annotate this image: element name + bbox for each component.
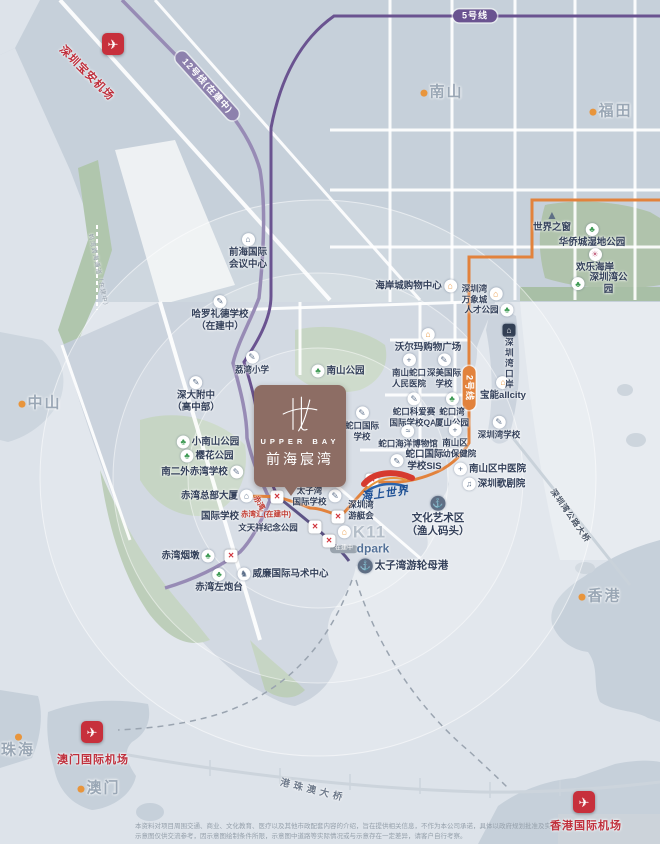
wentianxiang-memorial-park: 文天祥纪念公园 [238, 523, 298, 534]
park-icon: ♣ [501, 304, 514, 317]
school-icon: ✎ [437, 353, 450, 366]
shenzhen-bay-park-label: 深圳湾公园 [587, 272, 631, 296]
shenzhen-opera-house-label: 深圳歌剧院 [478, 478, 526, 490]
happy-coast: ☀欢乐海岸 [576, 248, 614, 274]
shenzhen-bay-school-label: 深圳湾学校 [478, 430, 521, 441]
shekou-international-school: ✎蛇口国际 学校 [345, 406, 379, 441]
harrow-lide-school: ✎哈罗礼德学校 （在建中） [191, 295, 248, 333]
yinghua-park-label: 樱花公园 [195, 450, 233, 462]
shekou-people-hospital: +南山蛇口 人民医院 [392, 353, 426, 388]
international-school: 国际学校 [201, 511, 239, 523]
nanshan-park-label: 南山公园 [326, 365, 364, 377]
customs-icon: ⌂ [503, 324, 516, 337]
shenzhen-bay-bridge-label-label: 深圳湾公路大桥 [548, 487, 592, 544]
shop-icon: ⌂ [489, 288, 502, 301]
william-equestrian-center: ♞威廉国际马术中心 [237, 568, 328, 581]
line5-pill: 5号线 [453, 9, 497, 22]
hospital-icon: + [454, 463, 467, 476]
chiwan-left-fort-label: 赤湾左炮台 [195, 582, 243, 594]
shop-icon: ⌂ [444, 280, 457, 293]
walmart-plaza-label: 沃尔玛购物广场 [395, 342, 462, 354]
shenzhen-airport-icon: ✈ [102, 33, 124, 55]
city-zhongshan-label: 中山 [27, 395, 61, 414]
harrow-lide-school-label: 哈罗礼德学校 （在建中） [191, 309, 248, 333]
shenzhen-bay-checkpoint: ⌂深圳湾口岸 [503, 324, 516, 391]
park-icon: ♣ [311, 365, 324, 378]
city-zhuhai: 珠海 [1, 734, 35, 761]
rencai-park-label: 人才公园 [464, 305, 498, 316]
city-zhongshan: 中山 [18, 395, 61, 414]
horse-icon: ♞ [237, 568, 250, 581]
city-hongkong-label: 香港 [587, 588, 621, 607]
upper-bay-monogram-icon [279, 393, 321, 435]
airport-icon: ✈ [81, 721, 103, 743]
william-equestrian-center-label: 威廉国际马术中心 [252, 568, 328, 580]
k11: ⌂K11 [338, 521, 386, 542]
shenzhen-bay-school: ✎深圳湾学校 [478, 416, 521, 441]
shenda-high-school: ✎深大附中 （高中部） [172, 376, 220, 414]
school-icon: ✎ [492, 416, 505, 429]
shenda-high-school-label: 深大附中 （高中部） [172, 390, 220, 414]
school-icon: ✎ [189, 376, 202, 389]
metro-station-marker: × [271, 491, 284, 504]
park-icon: ♣ [585, 223, 598, 236]
metro-station-marker: × [332, 511, 345, 524]
airport-icon: ✈ [102, 33, 124, 55]
building-icon: ⌂ [241, 233, 254, 246]
upper-bay-name-cn: 前海宸湾 [266, 449, 334, 469]
liwan-primary-school-label: 荔湾小学 [235, 365, 269, 376]
shenzhen-bay-park: ♣深圳湾公园 [572, 272, 631, 296]
park-icon: ♣ [180, 450, 193, 463]
xiaonanshan-park: ♣小南山公园 [177, 436, 240, 449]
shenmei-international-school: ✎深美国际 学校 [427, 353, 461, 388]
mawan-channel-label: 妈湾跨海通道（在建中） [85, 234, 108, 311]
liwan-primary-school: ✎荔湾小学 [235, 351, 269, 376]
line12-pill-label: 12号线(在建中) [179, 56, 234, 116]
hongkong-airport-icon: ✈ [573, 791, 595, 813]
school-icon: ✎ [245, 351, 258, 364]
line5-pill-label: 5号线 [462, 10, 488, 21]
citydot-icon [589, 109, 596, 116]
coastal-city-mall-label: 海岸城购物中心 [375, 280, 442, 292]
logo-pointer [284, 486, 298, 496]
school-icon: ✎ [213, 295, 226, 308]
hongkong-airport-label: 香港国际机场 [550, 820, 622, 834]
shekou-marine-museum: ≈蛇口海洋博物馆 [378, 425, 438, 450]
shenzhen-bay-mixc-label: 深圳湾 万象城 [462, 283, 488, 304]
museum-icon: ≈ [401, 425, 414, 438]
park-icon: ♣ [212, 568, 225, 581]
line12-pill: 12号线(在建中) [173, 49, 242, 123]
city-nanshan: 南山 [420, 84, 463, 103]
location-map: 5号线12号线(在建中)2号线✈深圳宝安机场⌂前海国际 会议中心✎哈罗礼德学校 … [0, 0, 660, 844]
citydot-icon [578, 594, 585, 601]
theater-icon: ♫ [463, 478, 476, 491]
hospital-icon: + [402, 353, 415, 366]
citydot-icon [18, 401, 25, 408]
wentianxiang-memorial-park-label: 文天祥纪念公园 [238, 523, 298, 534]
rencai-park: ♣人才公园 [464, 304, 513, 317]
school-icon: ✎ [390, 455, 403, 468]
xiaonanshan-park-label: 小南山公园 [192, 436, 240, 448]
taiziwan-international-school: ✎太子湾 国际学校 [292, 485, 341, 506]
shenzhen-bay-checkpoint-label: 深圳湾口岸 [504, 338, 515, 391]
attraction-icon: ☀ [588, 248, 601, 261]
shenzhen-bay-mixc: ⌂深圳湾 万象城 [462, 283, 503, 304]
upper-bay-logo: UPPER BAY 前海宸湾 [254, 385, 346, 487]
nanshan-tcm-hospital-label: 南山区中医院 [469, 463, 526, 475]
k11-label: K11 [353, 521, 386, 542]
baoneng-allcity-label: 宝能allcity [480, 390, 526, 402]
city-macau: 澳门 [77, 780, 120, 799]
metro-station-marker: × [323, 535, 336, 548]
walmart-plaza: ⌂沃尔玛购物广场 [395, 328, 462, 354]
chiwan-yandun: ♣赤湾烟墩 [161, 550, 214, 563]
wanxiashan-park: ♣蛇口湾 厦山公园 [435, 392, 469, 427]
international-school-label: 国际学校 [201, 511, 239, 523]
chiwan-headquarters-tower: ⌂赤湾总部大厦 [181, 490, 253, 503]
city-macau-label: 澳门 [86, 780, 120, 799]
city-futian: 福田 [589, 103, 632, 122]
metro-station-marker: × [309, 521, 322, 534]
citydot-icon [77, 786, 84, 793]
school-icon: ✎ [230, 466, 243, 479]
airport-icon: ✈ [573, 791, 595, 813]
citydot-icon [14, 734, 21, 741]
qianhai-conference-center-label: 前海国际 会议中心 [229, 247, 267, 271]
city-futian-label: 福田 [598, 103, 632, 122]
school-icon: ✎ [408, 392, 421, 405]
shenzhen-opera-house: ♫深圳歌剧院 [463, 478, 526, 491]
shekou-marine-museum-label: 蛇口海洋博物馆 [378, 439, 438, 450]
shekou-people-hospital-label: 南山蛇口 人民医院 [392, 367, 426, 388]
shenmei-international-school-label: 深美国际 学校 [427, 367, 461, 388]
anchor-icon: ⚓ [431, 496, 446, 511]
dpark: dpark [357, 542, 390, 557]
nanshan-park: ♣南山公园 [311, 365, 364, 378]
park-icon: ♣ [202, 550, 215, 563]
school-icon: ✎ [329, 490, 342, 503]
shop-icon: ⌂ [338, 526, 351, 539]
hongkong-airport-label-label: 香港国际机场 [550, 820, 622, 834]
park-icon: ♣ [572, 278, 585, 291]
metro-station-marker: × [225, 550, 238, 563]
yinghua-park: ♣樱花公园 [180, 450, 233, 463]
building-icon: ⌂ [240, 490, 253, 503]
oct-wetland-park: ♣华侨城湿地公园 [559, 223, 626, 249]
school-icon: ✎ [355, 406, 368, 419]
city-hongkong: 香港 [578, 588, 621, 607]
nanerwai-chiwan-school: ✎南二外赤湾学校 [161, 466, 243, 479]
chiwan-headquarters-tower-label: 赤湾总部大厦 [181, 490, 238, 502]
dpark-label: dpark [357, 542, 390, 557]
shekou-international-school-label: 蛇口国际 学校 [345, 420, 379, 441]
coastal-city-mall: ⌂海岸城购物中心 [375, 280, 457, 293]
culture-art-area-label: 文化艺术区 （渔人码头） [407, 512, 470, 538]
nanerwai-chiwan-school-label: 南二外赤湾学校 [161, 466, 228, 478]
nanshan-tcm-hospital: +南山区中医院 [454, 463, 526, 476]
park-icon: ♣ [445, 392, 458, 405]
macau-airport-icon: ✈ [81, 721, 103, 743]
qianhai-conference-center: ⌂前海国际 会议中心 [229, 233, 267, 271]
qai-international-school: ✎蛇口科爱赛 国际学校QAI [389, 392, 438, 427]
park-icon: ♣ [177, 436, 190, 449]
hzm-bridge-label-label: 港珠澳大桥 [279, 777, 347, 805]
city-zhuhai-label: 珠海 [1, 742, 35, 761]
upper-bay-name-en: UPPER BAY [260, 437, 339, 446]
chiwanhui-label-label: 赤湾汇(在建中) [241, 509, 291, 518]
dpark-pill-label: 在建中 [335, 545, 353, 553]
shop-icon: ⌂ [421, 328, 434, 341]
macau-airport-label: 澳门国际机场 [57, 754, 129, 768]
sea-world-logo: 海上世界 [360, 468, 422, 508]
citydot-icon [420, 90, 427, 97]
anchor-icon: ⚓ [358, 559, 373, 574]
chiwan-left-fort: ♣赤湾左炮台 [195, 568, 243, 594]
macau-airport-label-label: 澳门国际机场 [57, 754, 129, 768]
chiwan-yandun-label: 赤湾烟墩 [161, 550, 199, 562]
hospital-icon: + [448, 423, 461, 436]
taiziwan-cruise-home-port: ⚓太子湾游轮母港 [358, 559, 449, 574]
shenzhen-bay-bridge-label: 深圳湾公路大桥 [548, 487, 592, 544]
pyramid-icon: ▲ [545, 208, 558, 221]
hzm-bridge-label: 港珠澳大桥 [279, 777, 347, 805]
chiwanhui-label: 赤湾汇(在建中) [241, 509, 291, 518]
taiziwan-cruise-home-port-label: 太子湾游轮母港 [375, 559, 449, 572]
mawan-channel-label-label: 妈湾跨海通道（在建中） [85, 234, 108, 311]
city-nanshan-label: 南山 [429, 84, 463, 103]
